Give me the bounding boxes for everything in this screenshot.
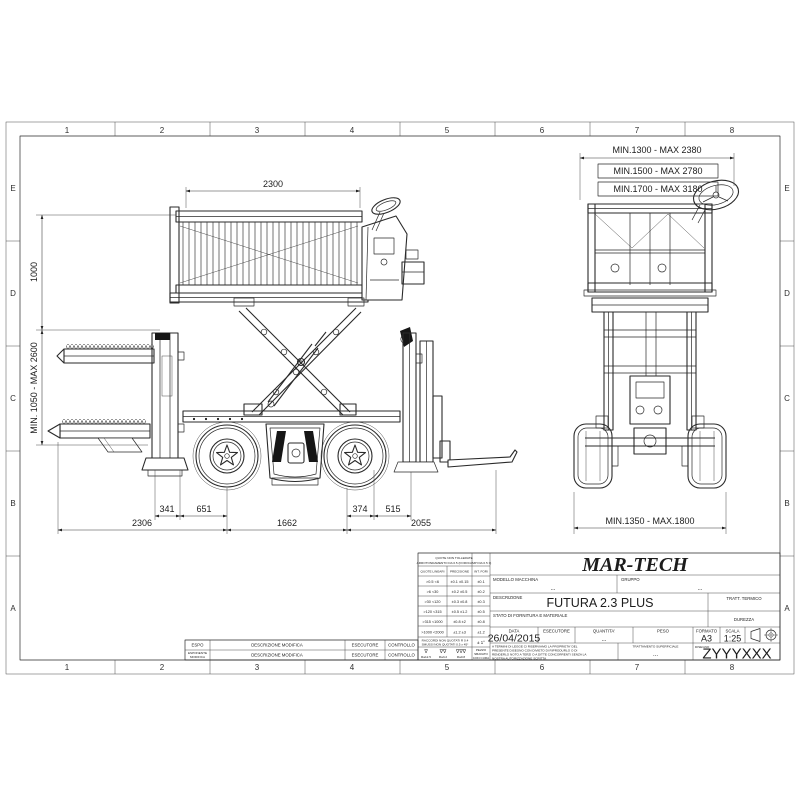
front-view xyxy=(574,176,742,488)
frame-column-labels-bottom: 1 2 3 4 5 6 7 8 xyxy=(65,663,735,672)
tolerance-col-holes: INT. FORI xyxy=(474,570,488,574)
col-label: 4 xyxy=(350,126,355,135)
descrizione-label: DESCRIZIONE xyxy=(493,595,522,600)
quantita-value: ... xyxy=(601,637,606,643)
lift-mast-front xyxy=(592,298,708,430)
durezza-label: DUREZZA xyxy=(734,617,754,622)
row-label: C xyxy=(784,394,790,403)
dim-1000: 1000 xyxy=(29,262,39,282)
dim-min1500-max2780: MIN.1500 - MAX 2780 xyxy=(613,166,702,176)
dim-515: 515 xyxy=(385,504,400,514)
raccordi-line2: SMUSSI NON QUOTATI 0.5 x 45° xyxy=(422,643,470,647)
dim-2055: 2055 xyxy=(411,518,431,528)
col-label: 7 xyxy=(635,663,640,672)
tol-range: >1000 <2000 xyxy=(421,631,443,635)
tolerance-header-1: QUOTE NON TOLLERATE xyxy=(435,556,472,560)
tratt-superficiale-label: TRATTAMENTO SUPERFICIALE xyxy=(633,645,679,649)
dim-min1050-max2600: MIN. 1050 - MAX 2600 xyxy=(29,342,39,434)
axle-front xyxy=(585,428,715,454)
row-label: E xyxy=(10,184,15,193)
tol-prec: ±0.1 ±0.15 xyxy=(451,580,469,584)
descrizione-value: FUTURA 2.3 PLUS xyxy=(547,596,654,610)
deburr-3: CON CURA xyxy=(473,656,490,660)
front-view-dimensions: MIN.1300 - MAX 2380 MIN.1500 - MAX 2780 … xyxy=(574,145,734,534)
tol-prec: ±0.5 ±1.2 xyxy=(452,610,468,614)
tol-fori: ±0.8 xyxy=(477,620,484,624)
tol-prec: ±0.2 ±0.5 xyxy=(452,590,468,594)
conveyor-arm-upper xyxy=(57,344,154,363)
dim-341: 341 xyxy=(159,504,174,514)
row-label: A xyxy=(784,604,790,613)
tol-range: >315 <1000 xyxy=(422,620,442,624)
row-label: D xyxy=(10,289,16,298)
tol-range: >30 <120 xyxy=(424,600,440,604)
revision-ctrl-label: CONTROLLO xyxy=(388,643,415,648)
peso-label: PESO xyxy=(657,629,670,634)
revision-table: ESPO DESCRIZIONE MODIFICA ESECUTORE CONT… xyxy=(185,640,418,660)
stato-label: STATO DI FORNITURA E MATERIALE xyxy=(493,613,568,618)
tol-range: >0.5 <6 xyxy=(426,580,439,584)
col-label: 7 xyxy=(635,126,640,135)
tol-prec: ±1.2 ±3 xyxy=(453,631,466,635)
quantita-label: QUANTITA' xyxy=(593,629,615,634)
row-label: D xyxy=(784,289,790,298)
col-label: 3 xyxy=(255,126,260,135)
wheel-front-side xyxy=(321,422,389,490)
data-value: 26/04/2015 xyxy=(488,633,541,645)
revision-exec-label-2: ESECUTORE xyxy=(352,653,379,658)
side-view xyxy=(48,194,517,490)
formato-value: A3 xyxy=(701,634,712,644)
tratt-superficiale-value: ... xyxy=(653,652,658,658)
tol-fori: ±0.2 xyxy=(477,590,484,594)
tol-range: >6 <30 xyxy=(427,590,439,594)
tolerance-col-precision: PRECISIONE xyxy=(450,570,469,574)
col-label: 6 xyxy=(540,663,545,672)
rear-mast xyxy=(142,333,188,476)
tol-fori: ±1.2 xyxy=(477,631,484,635)
tratt-termico-label: TRATT. TERMICO xyxy=(726,596,762,601)
dim-1662: 1662 xyxy=(277,518,297,528)
esecutore-label: ESECUTORE xyxy=(543,629,570,634)
col-label: 3 xyxy=(255,663,260,672)
revision-ctrl-label-2: CONTROLLO xyxy=(388,653,415,658)
row-label: B xyxy=(10,499,15,508)
modello-value: ... xyxy=(550,586,555,592)
fork-blade xyxy=(448,450,517,467)
dim-2300: 2300 xyxy=(263,179,283,189)
tol-fori: ±0.3 xyxy=(477,600,484,604)
wheel-left-front xyxy=(574,424,618,488)
col-label: 2 xyxy=(160,663,165,672)
wheel-right-front xyxy=(682,424,726,488)
platform-basket-side xyxy=(170,207,368,303)
front-mast-and-fork xyxy=(394,327,517,472)
revision-desc-label: DESCRIZIONE MODIFICA xyxy=(251,643,303,648)
tol-prec: ±0.3 ±0.8 xyxy=(452,600,468,604)
gruppo-label: GRUPPO xyxy=(621,577,640,582)
operator-console-side xyxy=(362,194,424,300)
col-label: 8 xyxy=(730,126,735,135)
tolerance-header-2: ARROTONDAMENTO DA 0.5 (FORI/CAMPI DA 0.5… xyxy=(417,561,492,565)
frame-row-labels-left: E D C B A xyxy=(10,184,16,613)
row-label: A xyxy=(10,604,16,613)
revision-exec-label: ESECUTORE xyxy=(352,643,379,648)
revision-desc-label-2: DESCRIZIONE MODIFICA xyxy=(251,653,303,658)
roughness-value-1: Ra12.5 xyxy=(421,655,431,659)
dim-374: 374 xyxy=(352,504,367,514)
tol-fori: ±0.1 xyxy=(477,580,484,584)
platform-basket-front xyxy=(584,204,716,296)
angles-tolerance: ± 1° xyxy=(477,640,485,645)
dim-min1350-max1800: MIN.1350 - MAX.1800 xyxy=(605,516,694,526)
scissor-lift-mechanism xyxy=(234,298,364,415)
row-label: C xyxy=(10,394,16,403)
col-label: 4 xyxy=(350,663,355,672)
dim-min1300-max2380: MIN.1300 - MAX 2380 xyxy=(612,145,701,155)
dim-2306: 2306 xyxy=(132,518,152,528)
tolerance-col-linear: QUOTE LINEARI xyxy=(421,570,445,574)
drawing-sheet: 1 2 3 4 5 6 7 8 1 2 3 4 5 6 7 8 E D C B … xyxy=(0,0,800,800)
scala-value: 1:25 xyxy=(724,634,742,644)
row-label: B xyxy=(784,499,789,508)
col-label: 1 xyxy=(65,126,70,135)
disegno-value: ZYYYXXX xyxy=(702,646,771,663)
col-label: 1 xyxy=(65,663,70,672)
gruppo-value: ... xyxy=(697,586,702,592)
row-label: E xyxy=(784,184,789,193)
col-label: 6 xyxy=(540,126,545,135)
roughness-value-3: Ra0.8 xyxy=(457,655,466,659)
col-label: 2 xyxy=(160,126,165,135)
engine-cover xyxy=(266,424,324,485)
roughness-value-2: Ra3.2 xyxy=(439,655,448,659)
first-angle-projection-symbol xyxy=(751,628,778,642)
conveyor-arm-lower xyxy=(48,419,150,452)
col-label: 8 xyxy=(730,663,735,672)
modello-label: MODELLO MACCHINA xyxy=(493,577,538,582)
col-label: 5 xyxy=(445,126,450,135)
revision-espo-label: ESPO xyxy=(192,643,205,648)
tol-fori: ±0.5 xyxy=(477,610,484,614)
col-label: 5 xyxy=(445,663,450,672)
revision-espo-sub2: MODIFICA xyxy=(190,655,206,659)
wheel-rear-side xyxy=(193,422,261,490)
tol-prec: ±0.8 ±2 xyxy=(453,620,466,624)
company-name: MAR-TECH xyxy=(581,554,689,576)
tolerance-table: QUOTE NON TOLLERATE ARROTONDAMENTO DA 0.… xyxy=(417,553,492,660)
tol-range: >120 <315 xyxy=(423,610,441,614)
dim-651: 651 xyxy=(196,504,211,514)
title-block: QUOTE NON TOLLERATE ARROTONDAMENTO DA 0.… xyxy=(417,553,780,663)
dim-min1700-max3180: MIN.1700 - MAX 3180 xyxy=(613,184,702,194)
technical-drawing-canvas: 1 2 3 4 5 6 7 8 1 2 3 4 5 6 7 8 E D C B … xyxy=(0,0,800,800)
frame-row-labels-right: E D C B A xyxy=(784,184,790,613)
frame-column-labels-top: 1 2 3 4 5 6 7 8 xyxy=(65,126,735,135)
legal-line-4: NOSTRA AUTORIZZAZIONE SCRITTA xyxy=(492,657,547,661)
chassis-side xyxy=(183,411,400,422)
sheet-frame: 1 2 3 4 5 6 7 8 1 2 3 4 5 6 7 8 E D C B … xyxy=(6,122,794,674)
